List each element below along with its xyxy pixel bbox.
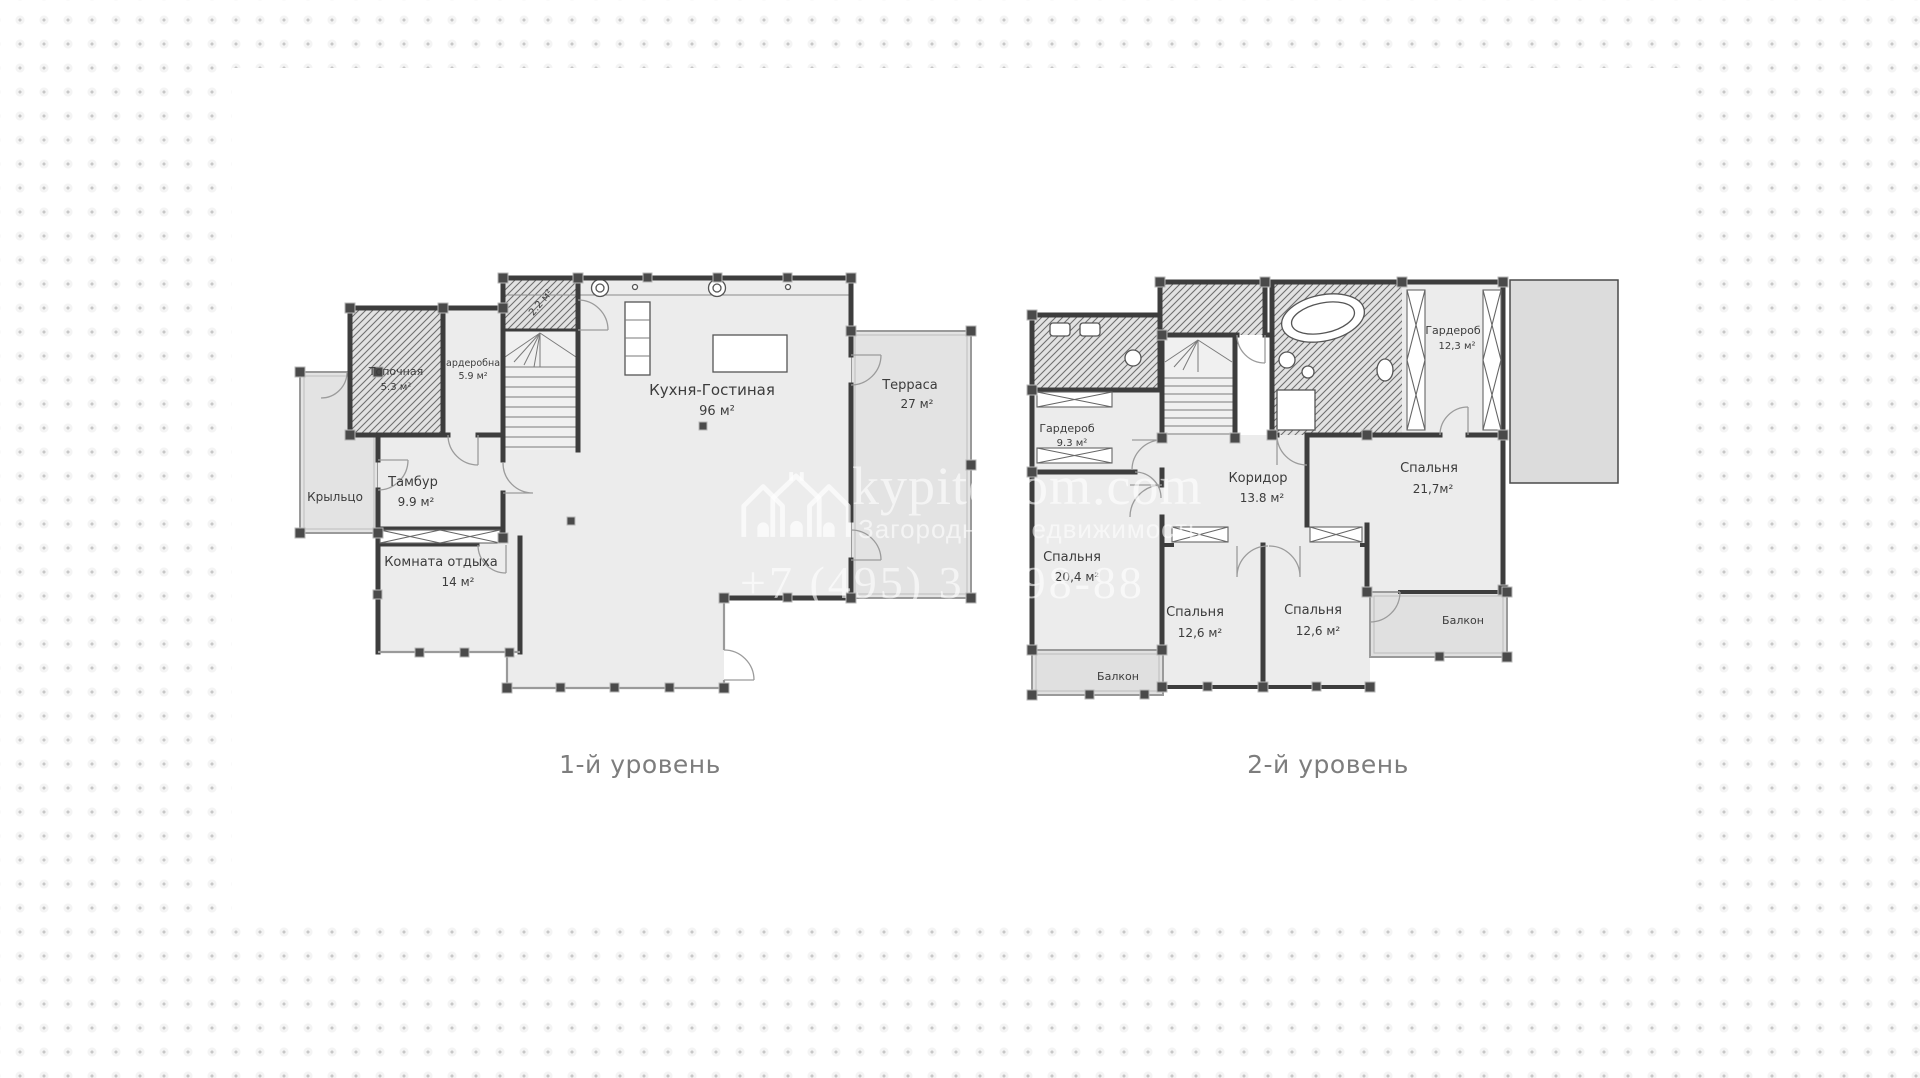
room-area-terrace: 27 м² [901,397,934,411]
room-label-wardrobe2: Гардероб [1425,324,1481,337]
room-label-bedroom4: Спальня [1400,461,1458,476]
caption-level-1: 1-й уровень [480,750,800,779]
room-area-wardrobe2: 12,3 м² [1439,341,1476,352]
room-area-bedroom4: 21,7м² [1413,482,1454,496]
window-band-hall [380,530,500,543]
room-label-wardrobe1: Гардероб [1039,422,1095,435]
room-label-bedroom2: Спальня [1166,605,1224,620]
room-area-corridor: 13.8 м² [1240,491,1285,505]
room-area-wardrobe: 5.9 м² [458,371,487,382]
room-label-kitchen: Кухня-Гостиная [649,381,775,399]
room-label-wardrobe: Гардеробная [440,358,506,369]
room-area-hall: 9.9 м² [398,495,435,509]
room-label-boiler: Топочная [368,365,423,378]
room-area-lounge: 14 м² [442,575,475,589]
room-label-terrace: Терраса [881,378,938,393]
room-label-bedroom1: Спальня [1043,550,1101,565]
room-label-bedroom3: Спальня [1284,603,1342,618]
room-label-porch: Крыльцо [307,490,363,504]
floorplan-page: { "colors": { "wall": "#3d3d3d", "room_f… [0,0,1920,1078]
room-label-lounge: Комната отдыха [384,555,498,570]
room-area-bedroom1: 20,4 м² [1055,570,1100,584]
room-label-hall: Тамбур [387,475,438,490]
room-label-balcony1: Балкон [1097,670,1139,683]
room-area-wardrobe1: 9.3 м² [1057,438,1088,449]
caption-level-2: 2-й уровень [1168,750,1488,779]
room-label-balcony2: Балкон [1442,614,1484,627]
room-area-boiler: 5.3 м² [381,382,412,393]
room-label-corridor: Коридор [1228,471,1287,486]
room-area-bedroom2: 12,6 м² [1178,626,1223,640]
floorplan-level-1: Топочная 5.3 м² Гардеробная 5.9 м² 2.2 м… [293,215,993,715]
roof-over-terrace [1510,280,1618,483]
floorplan-level-2: Гардероб 9.3 м² Спальня 20,4 м² Балкон К… [1025,250,1625,710]
room-area-kitchen: 96 м² [699,404,735,419]
room-area-bedroom3: 12,6 м² [1296,624,1341,638]
